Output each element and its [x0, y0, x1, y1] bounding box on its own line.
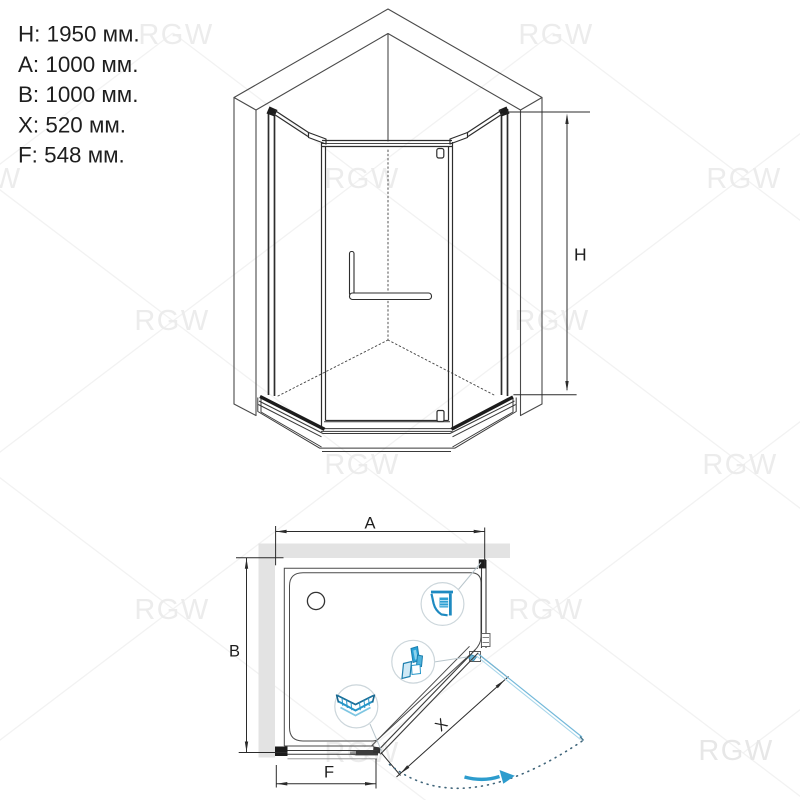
svg-text:RGW: RGW	[702, 449, 777, 481]
svg-text:F: F	[324, 764, 334, 782]
svg-text:B: 1000 мм.: B: 1000 мм.	[18, 82, 138, 107]
svg-text:RGW: RGW	[138, 19, 213, 51]
svg-text:A: 1000 мм.: A: 1000 мм.	[18, 52, 138, 77]
svg-text:A: A	[365, 515, 376, 533]
svg-text:RGW: RGW	[134, 594, 209, 626]
svg-text:RGW: RGW	[518, 19, 593, 51]
svg-text:H: 1950 мм.: H: 1950 мм.	[18, 22, 140, 47]
svg-text:RGW: RGW	[706, 163, 781, 195]
svg-text:RGW: RGW	[514, 305, 589, 337]
svg-text:X: X	[432, 715, 452, 735]
svg-text:RGW: RGW	[134, 305, 209, 337]
svg-text:RGW: RGW	[0, 163, 22, 195]
svg-text:RGW: RGW	[508, 594, 583, 626]
svg-text:RGW: RGW	[324, 449, 399, 481]
svg-text:F: 548 мм.: F: 548 мм.	[18, 143, 125, 168]
svg-text:RGW: RGW	[698, 735, 773, 767]
svg-text:X: 520 мм.: X: 520 мм.	[18, 112, 126, 137]
svg-text:B: B	[229, 643, 240, 661]
svg-text:H: H	[574, 245, 587, 265]
